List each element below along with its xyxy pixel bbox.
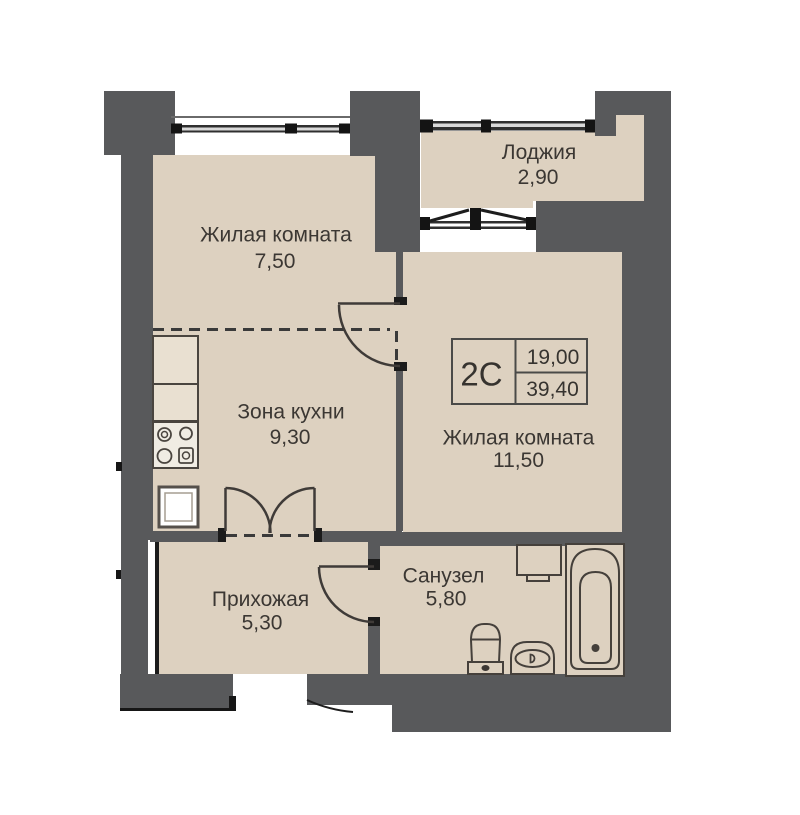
svg-text:Лоджия: Лоджия — [502, 141, 576, 164]
svg-text:39,40: 39,40 — [526, 378, 579, 401]
svg-text:2С: 2С — [460, 356, 502, 393]
svg-text:Прихожая: Прихожая — [212, 588, 309, 611]
svg-text:5,80: 5,80 — [426, 588, 467, 611]
svg-text:19,00: 19,00 — [527, 346, 580, 369]
svg-text:Жилая комната: Жилая комната — [443, 427, 595, 450]
svg-text:Жилая комната: Жилая комната — [200, 224, 352, 247]
svg-text:Санузел: Санузел — [403, 565, 485, 588]
svg-text:Зона кухни: Зона кухни — [237, 401, 344, 424]
svg-text:11,50: 11,50 — [493, 449, 544, 472]
svg-text:7,50: 7,50 — [255, 250, 296, 273]
svg-text:5,30: 5,30 — [242, 612, 283, 635]
svg-text:2,90: 2,90 — [518, 166, 559, 189]
svg-text:9,30: 9,30 — [270, 426, 311, 449]
